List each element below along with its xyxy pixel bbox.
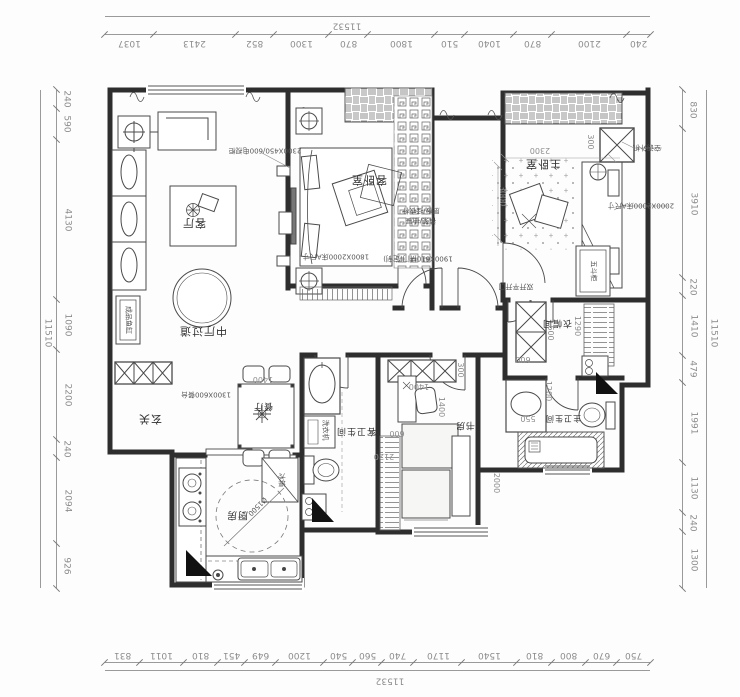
water-heater-icon	[582, 356, 608, 376]
toilet-icon	[579, 402, 615, 429]
dim-segment: 1090	[62, 313, 72, 336]
note-ac-unit: 空调外机	[633, 144, 661, 151]
closet-cabinet-icon	[516, 302, 546, 362]
dim-segment: 870	[524, 38, 541, 48]
dim-segment: 831	[114, 650, 131, 660]
inner-dim-1290: 1290	[573, 316, 581, 336]
room-label-guest-bedroom: 客卧室	[351, 175, 387, 186]
dim-segment: 1040	[478, 38, 501, 48]
dim-segment: 1130	[688, 477, 698, 500]
dim-segment: 1540	[478, 650, 501, 660]
dim-segment: 810	[526, 650, 543, 660]
dim-segment: 240	[62, 440, 72, 457]
vanity-icon	[304, 358, 340, 414]
dim-segment: 1800	[390, 38, 413, 48]
dim-segment: 540	[330, 650, 347, 660]
shoe-cabinet-icon	[115, 362, 172, 384]
dim-segment: 590	[62, 116, 72, 133]
dim-segment: 810	[192, 650, 209, 660]
dim-segment: 240	[688, 514, 698, 531]
dim-segment: 1300	[290, 38, 313, 48]
washing-machine-icon	[304, 416, 335, 448]
dim-segment: 3910	[688, 192, 698, 215]
floorplan-canvas: 11532 1037 2413 852 1300 870 1800 510 10…	[0, 0, 740, 697]
dim-segment: 670	[593, 650, 610, 660]
dim-segment: 2100	[578, 38, 601, 48]
inner-dim-600b: 600	[546, 325, 554, 340]
note-drawer: 裤架/抽屉	[406, 217, 436, 224]
dim-segment: 830	[688, 101, 698, 118]
dim-segment: 2200	[62, 383, 72, 406]
inner-dim-1400c: 1400	[437, 397, 445, 417]
flue-shaft-icon	[600, 128, 634, 162]
dim-segment: 1200	[288, 650, 311, 660]
armchair-icon	[158, 112, 216, 150]
dim-line-bottom-total	[105, 670, 650, 671]
dim-left-total: 11510	[43, 319, 52, 348]
inner-dim-3000: 3000	[498, 186, 506, 206]
toilet-icon	[304, 456, 339, 484]
inner-dim-300b: 300	[456, 362, 464, 377]
nightstand-lamp-icon	[296, 108, 322, 134]
guest-bed-icon	[300, 148, 402, 266]
vanity-icon	[506, 380, 546, 432]
guest-bedroom-furniture	[296, 96, 432, 300]
note-double-door: 双开平开门	[499, 283, 534, 290]
room-label-study: 书房	[455, 420, 475, 429]
wardrobe-hanger-icon	[380, 436, 400, 530]
dim-segment: 451	[223, 650, 240, 660]
dim-line-top-total	[105, 16, 650, 17]
inner-dim-600c: 600	[515, 355, 530, 363]
note-shelf: 层板/挂衣杆	[402, 207, 439, 214]
room-label-entry: 玄关	[138, 414, 162, 425]
inner-dim-1400a: 1400	[253, 375, 273, 383]
inner-dim-550: 550	[520, 414, 535, 422]
dim-chain-bottom: 831 1011 810 451 649 1200 540 560 740 11…	[105, 647, 650, 663]
dim-segment: 240	[630, 38, 647, 48]
floor-plan-svg	[0, 0, 740, 697]
dining-table-icon	[238, 384, 294, 448]
dim-bottom-total: 11532	[376, 676, 405, 685]
tatami-bed-icon	[402, 424, 470, 520]
dim-chain-right: 830 3910 220 1410 479 1991 1130 240 1300	[682, 90, 703, 588]
side-table-icon	[118, 116, 158, 152]
bay-window-master-icon	[505, 93, 622, 124]
dim-segment: 870	[340, 38, 357, 48]
note-door-custom: 1900X610拼门(定制)	[383, 255, 452, 262]
room-label-kitchen: 厨房	[226, 509, 248, 519]
dim-segment: 852	[246, 38, 263, 48]
dim-segment: 800	[560, 650, 577, 660]
dim-segment: 240	[62, 91, 72, 108]
dim-segment: 1170	[427, 650, 450, 660]
dim-segment: 1410	[688, 314, 698, 337]
dim-segment: 220	[688, 278, 698, 295]
dim-segment: 649	[252, 650, 269, 660]
master-bedroom-furniture	[492, 128, 634, 296]
note-aquarium: 成品鱼缸	[125, 306, 132, 334]
radiator-icon	[300, 287, 392, 300]
note-washer: 洗衣机	[322, 420, 329, 441]
dim-segment: 560	[359, 650, 376, 660]
dim-top-total: 11532	[333, 21, 362, 30]
meander-rug-icon	[394, 96, 432, 268]
inner-dim-1200: 1200	[544, 381, 552, 401]
inner-dim-2120: 2120	[374, 452, 394, 460]
inner-dim-300a: 300	[586, 134, 594, 149]
bathtub-icon	[518, 432, 604, 468]
room-label-guest-bath: 客卫生间	[336, 426, 376, 435]
inner-dim-600a: 600	[389, 429, 404, 437]
dim-chain-left: 240 590 4130 1090 2200 240 2094 926	[56, 90, 77, 588]
note-guest-bed-size: 1800X2000床A尺寸	[303, 253, 369, 260]
dim-segment: 1300	[688, 549, 698, 572]
note-dining-table: 1300X600餐台	[181, 391, 231, 398]
dim-segment: 740	[389, 650, 406, 660]
dim-segment: 2413	[183, 38, 206, 48]
room-label-hall: 中厅过道	[179, 326, 227, 337]
window-study-icon	[412, 525, 490, 539]
inner-dim-2300: 2300	[530, 146, 550, 154]
room-label-master-bath: 主卫生间	[545, 414, 581, 422]
dim-segment: 479	[688, 361, 698, 378]
dim-right-total: 11510	[709, 319, 718, 348]
master-bath-furniture	[506, 356, 618, 468]
stove-icon	[179, 468, 206, 526]
door-lobby-left-icon	[402, 268, 442, 308]
dim-line-right-total	[706, 90, 707, 588]
inner-dim-1400b: 1400	[409, 382, 429, 390]
inner-dim-2000: 2000	[492, 473, 500, 493]
note-tv-cabinet: 2300X450/600电视柜	[229, 147, 302, 154]
round-rug-icon	[173, 269, 231, 327]
window-living-top-icon	[146, 84, 246, 97]
dim-segment: 1037	[118, 38, 141, 48]
note-master-bed-size: 2000X2000床A尺寸	[608, 202, 674, 209]
note-fridge: 冰箱	[278, 473, 285, 487]
dim-segment: 510	[441, 38, 458, 48]
dim-segment: 926	[62, 558, 72, 575]
dim-segment: 1991	[688, 412, 698, 435]
dim-segment: 4130	[62, 209, 72, 232]
room-label-master-bedroom: 主卧室	[525, 159, 561, 170]
dim-segment: 1011	[150, 650, 173, 660]
dim-chain-top: 1037 2413 852 1300 870 1800 510 1040 870…	[105, 34, 650, 50]
sink-icon	[238, 558, 300, 580]
dim-segment: 2094	[62, 490, 72, 513]
dim-line-left-total	[40, 90, 41, 588]
door-lobby-right-icon	[458, 268, 498, 308]
room-label-dining: 餐厅	[253, 401, 273, 410]
dim-segment: 750	[625, 650, 642, 660]
sofa-icon	[112, 150, 146, 290]
note-dresser: 五斗柜	[590, 261, 597, 282]
room-label-living: 客厅	[182, 218, 206, 229]
